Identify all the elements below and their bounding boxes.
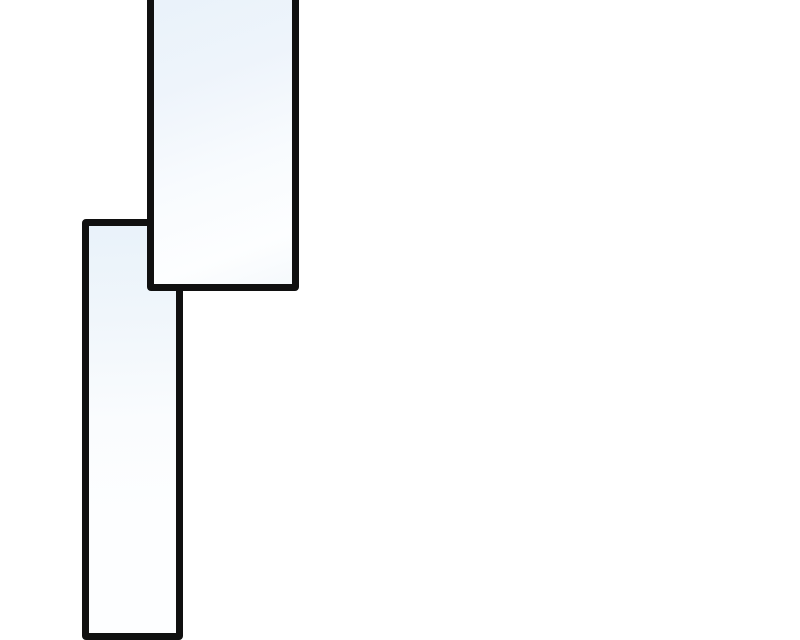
page-background (0, 0, 800, 600)
comic-panel-upper (147, 0, 299, 291)
